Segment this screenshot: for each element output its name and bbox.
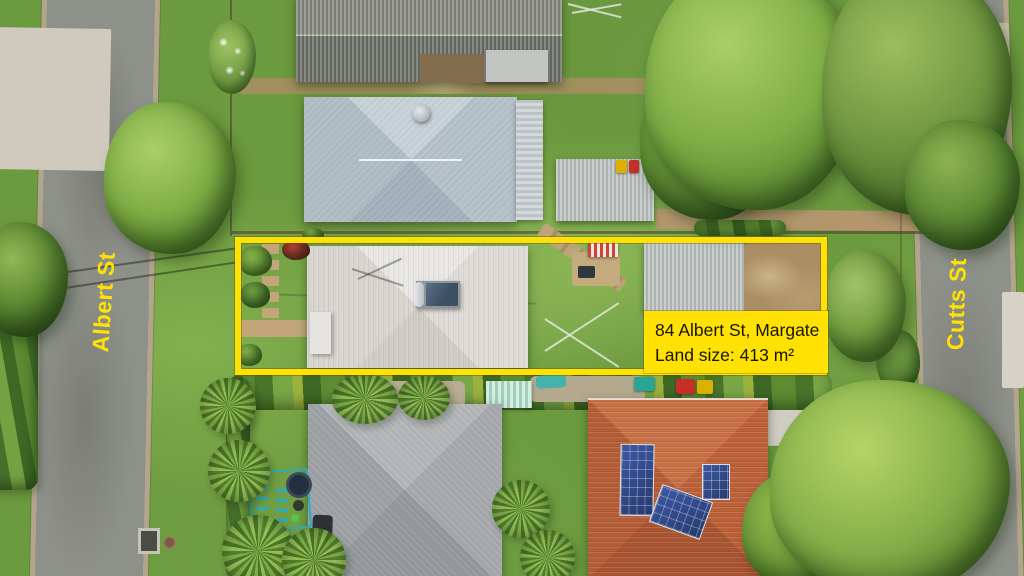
palm-tree: [332, 374, 398, 424]
utility-pit: [138, 528, 160, 554]
pool-edge: [536, 374, 567, 389]
deck-top-house: [420, 54, 484, 83]
info-land-size: Land size: 413 m²: [655, 343, 828, 368]
hedge-row-top: [694, 220, 786, 236]
satellite-dish: [412, 104, 430, 122]
bin-red: [676, 379, 695, 394]
roof-terracotta-house: [588, 398, 768, 576]
wheelie-bin-red: [629, 160, 639, 173]
flowering-tree: [208, 20, 256, 94]
concrete-pad-top-left: [0, 27, 111, 171]
shed-second-house: [556, 159, 654, 221]
street-label-cutts: Cutts St: [942, 257, 972, 350]
hydrant-marker: [163, 536, 176, 549]
info-address: 84 Albert St, Margate: [655, 318, 828, 343]
property-info-box: 84 Albert St, Margate Land size: 413 m²: [644, 311, 828, 373]
garden-pot: [293, 500, 304, 511]
covered-walkway: [516, 100, 543, 220]
fence-mid: [232, 231, 930, 234]
solar-panel-array: [702, 464, 730, 500]
canopy-tree: [905, 120, 1020, 250]
wheelie-bin-yellow: [616, 160, 627, 173]
aerial-photo: Albert St Cutts St 84 Albert St, Margate…: [0, 0, 1024, 576]
palm-tree: [492, 480, 550, 538]
bin-yellow: [697, 380, 713, 394]
roof-second-house: [304, 97, 517, 222]
large-tree-bottom-right: [770, 380, 1010, 576]
palm-tree: [208, 440, 270, 502]
ball: [291, 514, 299, 522]
street-tree: [104, 102, 236, 254]
footpath-right: [1002, 292, 1024, 388]
palm-tree: [200, 378, 256, 434]
bin-teal: [634, 377, 655, 391]
palm-tree: [520, 530, 575, 576]
small-tree: [824, 250, 906, 362]
caravan-annex: [486, 50, 548, 82]
palm-tree: [398, 376, 450, 420]
solar-panel-array: [619, 444, 654, 517]
trampoline: [286, 472, 312, 498]
